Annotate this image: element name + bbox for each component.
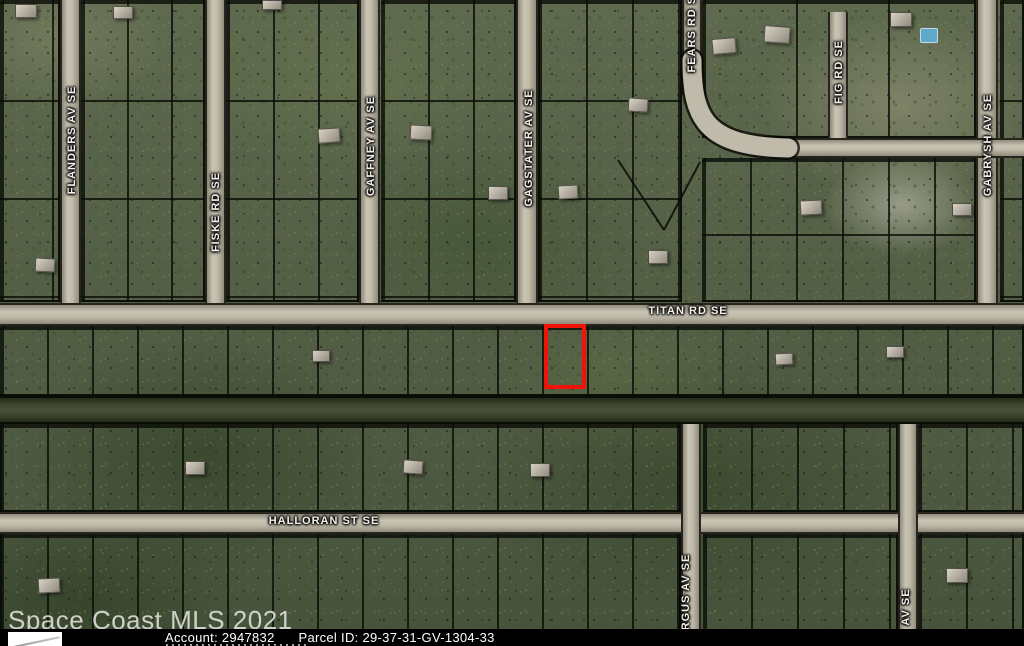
highlighted-parcel-outline [544,324,586,389]
street-label: GAFFNEY AV SE [365,96,377,196]
house-roof [35,257,56,272]
mls-aerial-parcel-map: FLANDERS AV SEFISKE RD SEGAFFNEY AV SEGA… [0,0,1024,646]
house-roof [38,577,61,593]
street-label: FEARS RD SE [686,0,698,72]
parcel-block [381,0,516,302]
house-roof [185,461,205,475]
parcel-block [0,326,1024,396]
street-label: AV SE [900,588,912,625]
street-label: GAGSTATER AV SE [523,89,535,206]
street-label: FISKE RD SE [210,172,222,252]
house-roof [403,459,424,474]
house-roof [952,203,972,216]
house-roof [113,6,133,19]
parcel-block [0,0,60,302]
house-roof [262,0,282,10]
house-roof [800,199,823,215]
swimming-pool [920,28,938,43]
titan-rd-road [0,303,1024,326]
street-label: HALLORAN ST SE [269,515,380,527]
parcel-id-value: 29-37-31-GV-1304-33 [362,630,494,645]
house-roof [488,186,508,200]
halloran-st-road [0,512,1024,534]
house-roof [318,127,341,143]
house-roof [711,37,736,55]
house-roof [558,184,579,199]
house-roof [628,97,649,112]
parcel-block [918,424,1024,512]
house-roof [410,124,433,140]
parcel-id-label: Parcel ID: [298,630,358,645]
mls-logo [8,632,62,646]
street-label: FLANDERS AV SE [66,86,78,195]
house-roof [312,350,330,362]
parcel-block [703,424,898,512]
fiske-rd-road [205,0,226,326]
house-roof [648,250,668,264]
house-roof [775,353,794,366]
parcel-block [702,158,976,302]
house-roof [886,346,904,358]
house-roof [763,25,790,44]
account-value: 2947832 [222,630,275,645]
street-label: RGUS AV SE [680,554,692,631]
street-label: FIG RD SE [833,40,845,104]
street-label: GABRYSH AV SE [982,94,994,196]
house-roof [946,568,968,583]
parcel-block [81,0,205,302]
drainage-canal [0,396,1024,424]
street-label: TITAN RD SE [648,305,727,317]
parcel-block [0,424,681,512]
parcel-block [226,0,359,302]
footer-info-bar: Account: 2947832 Parcel ID: 29-37-31-GV-… [0,629,1024,646]
house-roof [15,4,37,18]
parcel-info-line: Account: 2947832 Parcel ID: 29-37-31-GV-… [165,630,495,645]
house-roof [530,463,550,477]
house-roof [890,12,912,27]
account-label: Account: [165,630,218,645]
